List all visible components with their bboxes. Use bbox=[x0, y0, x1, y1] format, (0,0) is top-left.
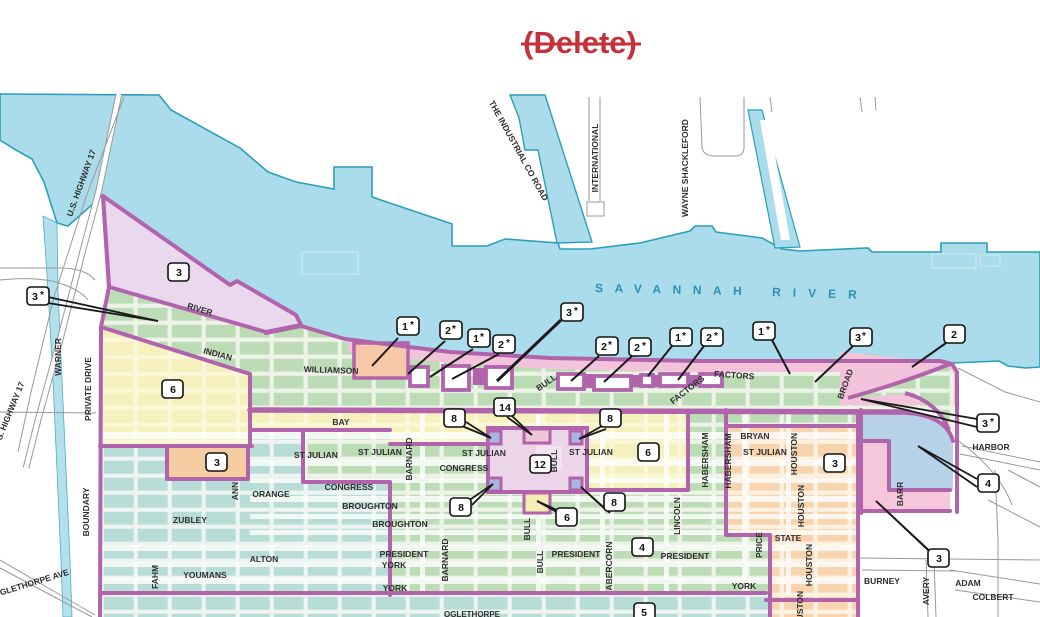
svg-text:*: * bbox=[574, 306, 578, 317]
svg-text:*: * bbox=[506, 338, 510, 349]
svg-text:HOUSTON: HOUSTON bbox=[796, 485, 806, 527]
svg-text:WILLIAMSON: WILLIAMSON bbox=[304, 364, 359, 376]
svg-text:ZUBLEY: ZUBLEY bbox=[173, 515, 207, 525]
svg-text:5: 5 bbox=[641, 607, 647, 617]
svg-text:HARBOR: HARBOR bbox=[972, 442, 1009, 452]
svg-text:8: 8 bbox=[458, 502, 464, 514]
svg-text:ANN: ANN bbox=[230, 482, 240, 500]
svg-text:PRIVATE DRIVE: PRIVATE DRIVE bbox=[83, 357, 93, 421]
svg-text:BURNEY: BURNEY bbox=[864, 576, 900, 586]
svg-text:3: 3 bbox=[982, 418, 988, 430]
svg-text:2: 2 bbox=[706, 332, 712, 344]
svg-text:*: * bbox=[480, 332, 484, 343]
svg-text:1: 1 bbox=[758, 326, 764, 338]
svg-text:2: 2 bbox=[601, 341, 607, 353]
svg-text:1: 1 bbox=[402, 321, 408, 333]
svg-text:YOUMANS: YOUMANS bbox=[183, 570, 227, 580]
svg-text:BULL: BULL bbox=[522, 518, 532, 541]
svg-text:BROUGHTON: BROUGHTON bbox=[342, 501, 398, 511]
svg-text:HOUSTON: HOUSTON bbox=[804, 544, 814, 586]
svg-text:ST JULIAN: ST JULIAN bbox=[358, 447, 402, 457]
svg-text:8: 8 bbox=[607, 413, 613, 425]
svg-text:12: 12 bbox=[534, 459, 546, 471]
svg-text:ST JULIAN: ST JULIAN bbox=[743, 447, 787, 457]
svg-text:*: * bbox=[990, 417, 994, 428]
svg-text:STATE: STATE bbox=[775, 533, 802, 543]
svg-text:HABERSHAM: HABERSHAM bbox=[700, 432, 710, 487]
svg-text:BARNARD: BARNARD bbox=[404, 438, 414, 481]
svg-text:ADAM: ADAM bbox=[955, 578, 981, 588]
svg-text:INTERNATIONAL: INTERNATIONAL bbox=[590, 124, 600, 193]
svg-text:YORK: YORK bbox=[382, 560, 407, 570]
svg-text:*: * bbox=[410, 320, 414, 331]
svg-text:ABERCORN: ABERCORN bbox=[604, 541, 614, 590]
svg-text:2: 2 bbox=[498, 339, 504, 351]
svg-text:1: 1 bbox=[473, 333, 479, 345]
svg-text:2: 2 bbox=[445, 325, 451, 337]
svg-text:*: * bbox=[40, 290, 44, 301]
svg-text:6: 6 bbox=[645, 447, 651, 459]
svg-text:CONGRESS: CONGRESS bbox=[325, 482, 374, 492]
svg-text:PRICE: PRICE bbox=[754, 532, 764, 558]
svg-text:YORK: YORK bbox=[383, 583, 408, 593]
svg-text:BROUGHTON: BROUGHTON bbox=[372, 519, 428, 529]
svg-text:2: 2 bbox=[951, 329, 957, 341]
svg-text:BRYAN: BRYAN bbox=[740, 431, 769, 441]
svg-text:HOUSTON: HOUSTON bbox=[795, 591, 805, 617]
svg-text:AVERY: AVERY bbox=[921, 577, 931, 606]
svg-text:8: 8 bbox=[451, 413, 457, 425]
svg-text:*: * bbox=[862, 331, 866, 342]
svg-text:3: 3 bbox=[936, 553, 942, 565]
svg-text:3: 3 bbox=[855, 332, 861, 344]
svg-text:6: 6 bbox=[170, 384, 176, 396]
svg-text:COLBERT: COLBERT bbox=[972, 592, 1014, 602]
svg-text:1: 1 bbox=[675, 332, 681, 344]
svg-text:BOUNDARY: BOUNDARY bbox=[81, 487, 91, 536]
svg-text:ORANGE: ORANGE bbox=[252, 489, 290, 499]
svg-text:WAYNE SHACKLEFORD: WAYNE SHACKLEFORD bbox=[680, 119, 690, 217]
svg-text:PRESIDENT: PRESIDENT bbox=[380, 549, 429, 559]
svg-text:ALTON: ALTON bbox=[250, 554, 279, 564]
svg-text:BULL: BULL bbox=[535, 551, 545, 574]
svg-text:LINCOLN: LINCOLN bbox=[672, 497, 682, 535]
svg-text:*: * bbox=[766, 325, 770, 336]
svg-text:4: 4 bbox=[985, 478, 991, 490]
svg-text:CONGRESS: CONGRESS bbox=[440, 463, 489, 473]
svg-text:3: 3 bbox=[566, 307, 572, 319]
svg-text:*: * bbox=[682, 331, 686, 342]
svg-text:WARNER: WARNER bbox=[53, 338, 63, 376]
svg-text:3: 3 bbox=[832, 458, 838, 470]
svg-text:ST JULIAN: ST JULIAN bbox=[294, 450, 338, 460]
svg-text:ST JULIAN: ST JULIAN bbox=[569, 447, 613, 457]
svg-text:*: * bbox=[608, 340, 612, 351]
svg-text:BAY: BAY bbox=[332, 417, 349, 427]
svg-text:6: 6 bbox=[564, 512, 570, 524]
svg-text:8: 8 bbox=[611, 497, 617, 509]
svg-text:*: * bbox=[452, 324, 456, 335]
svg-text:*: * bbox=[642, 341, 646, 352]
svg-text:BARNARD: BARNARD bbox=[440, 539, 450, 582]
svg-text:2: 2 bbox=[634, 342, 640, 354]
svg-text:ST JULIAN: ST JULIAN bbox=[462, 448, 506, 458]
svg-text:4: 4 bbox=[639, 542, 645, 554]
svg-text:HOUSTON: HOUSTON bbox=[789, 433, 799, 475]
svg-text:BARR: BARR bbox=[895, 482, 905, 507]
svg-text:*: * bbox=[714, 331, 718, 342]
svg-text:HABERSHAM: HABERSHAM bbox=[723, 433, 733, 488]
svg-text:PRESIDENT: PRESIDENT bbox=[661, 551, 710, 561]
svg-text:3: 3 bbox=[214, 457, 220, 469]
svg-text:OGLETHORPE: OGLETHORPE bbox=[444, 610, 501, 617]
svg-text:3: 3 bbox=[32, 291, 38, 303]
svg-text:14: 14 bbox=[499, 402, 511, 414]
svg-text:FAHM: FAHM bbox=[150, 565, 160, 589]
svg-text:YORK: YORK bbox=[732, 581, 757, 591]
svg-text:3: 3 bbox=[176, 267, 182, 279]
svg-text:PRESIDENT: PRESIDENT bbox=[552, 549, 601, 559]
